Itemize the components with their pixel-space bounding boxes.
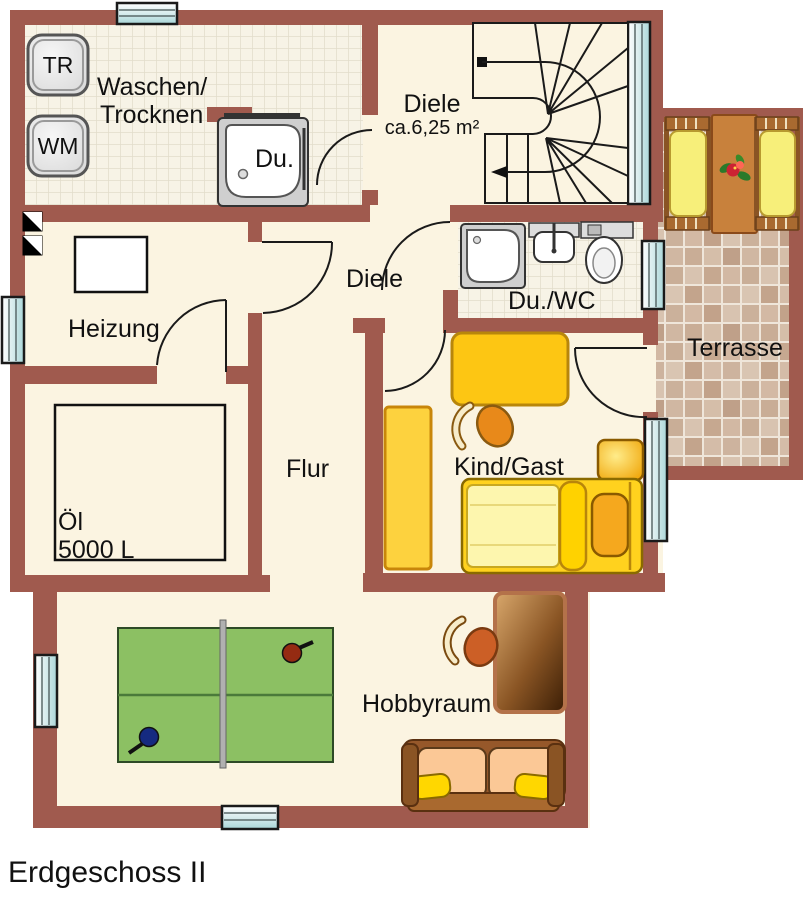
wall-segment bbox=[362, 190, 378, 205]
label-diele-area: ca.6,25 m² bbox=[385, 117, 480, 139]
terrasse-lounger-right bbox=[754, 117, 800, 230]
couch-armrest bbox=[402, 744, 418, 806]
label-dusche: Du. bbox=[255, 145, 294, 173]
wall-segment bbox=[565, 592, 588, 806]
wall-segment bbox=[248, 366, 262, 575]
duwc-sink bbox=[529, 223, 579, 262]
wall-segment bbox=[10, 205, 370, 222]
wall-segment bbox=[650, 10, 663, 222]
wall-segment bbox=[443, 318, 655, 333]
wall-segment bbox=[10, 575, 270, 592]
label-flur: Flur bbox=[286, 455, 329, 483]
wall-segment bbox=[248, 222, 262, 242]
label-kindgast: Kind/Gast bbox=[454, 453, 564, 481]
label-waschen-line2: Trocknen bbox=[100, 101, 203, 129]
terrasse-lounger-left bbox=[664, 117, 711, 230]
label-waschen-line1: Waschen/ bbox=[97, 73, 207, 101]
floor-plan-drawing: TR WM bbox=[0, 0, 809, 900]
wall-segment bbox=[443, 290, 458, 320]
window-heizung bbox=[2, 297, 24, 363]
label-hobbyraum: Hobbyraum bbox=[362, 690, 491, 718]
window-hobby-left bbox=[35, 655, 57, 727]
couch bbox=[402, 740, 565, 811]
label-terrasse: Terrasse bbox=[687, 334, 783, 362]
table-tennis-net bbox=[220, 620, 226, 768]
label-duwc: Du./WC bbox=[508, 287, 596, 315]
bed-pillow bbox=[560, 482, 586, 570]
wall-segment bbox=[450, 205, 658, 222]
wall-segment bbox=[10, 366, 157, 384]
label-diele-upper: Diele bbox=[404, 90, 461, 118]
floor-plan-page: TR WM bbox=[0, 0, 809, 900]
window-hobby-bottom bbox=[222, 806, 278, 829]
hobby-desk bbox=[495, 593, 565, 712]
label-heizung: Heizung bbox=[68, 315, 160, 343]
window-duwc bbox=[642, 241, 664, 309]
window-kindgast bbox=[645, 419, 667, 541]
window-top bbox=[117, 3, 177, 24]
label-oel: Öl bbox=[58, 508, 83, 536]
wall-segment bbox=[365, 330, 383, 573]
kindgast-desk bbox=[452, 333, 568, 405]
plan-title: Erdgeschoss II bbox=[8, 856, 206, 889]
dryer: TR bbox=[28, 35, 88, 95]
kindgast-bed bbox=[462, 479, 642, 573]
kindgast-nightstand bbox=[598, 440, 643, 480]
wall-segment bbox=[362, 25, 378, 115]
table-tennis-table bbox=[118, 620, 333, 768]
wall-segment bbox=[363, 573, 665, 592]
bed-pillow-2 bbox=[592, 494, 628, 556]
washing-machine: WM bbox=[28, 116, 88, 176]
wall-segment bbox=[248, 313, 262, 366]
kindgast-wardrobe bbox=[385, 407, 431, 569]
label-diele-lower: Diele bbox=[346, 265, 403, 293]
washer-label: WM bbox=[38, 133, 79, 159]
heizung-boiler bbox=[75, 237, 147, 292]
dryer-label: TR bbox=[43, 52, 74, 78]
terrasse-table bbox=[712, 115, 757, 233]
duwc-shower bbox=[461, 224, 525, 288]
window-staircase bbox=[628, 22, 650, 204]
label-oel-capacity: 5000 L bbox=[58, 536, 135, 564]
couch-armrest bbox=[548, 744, 564, 806]
